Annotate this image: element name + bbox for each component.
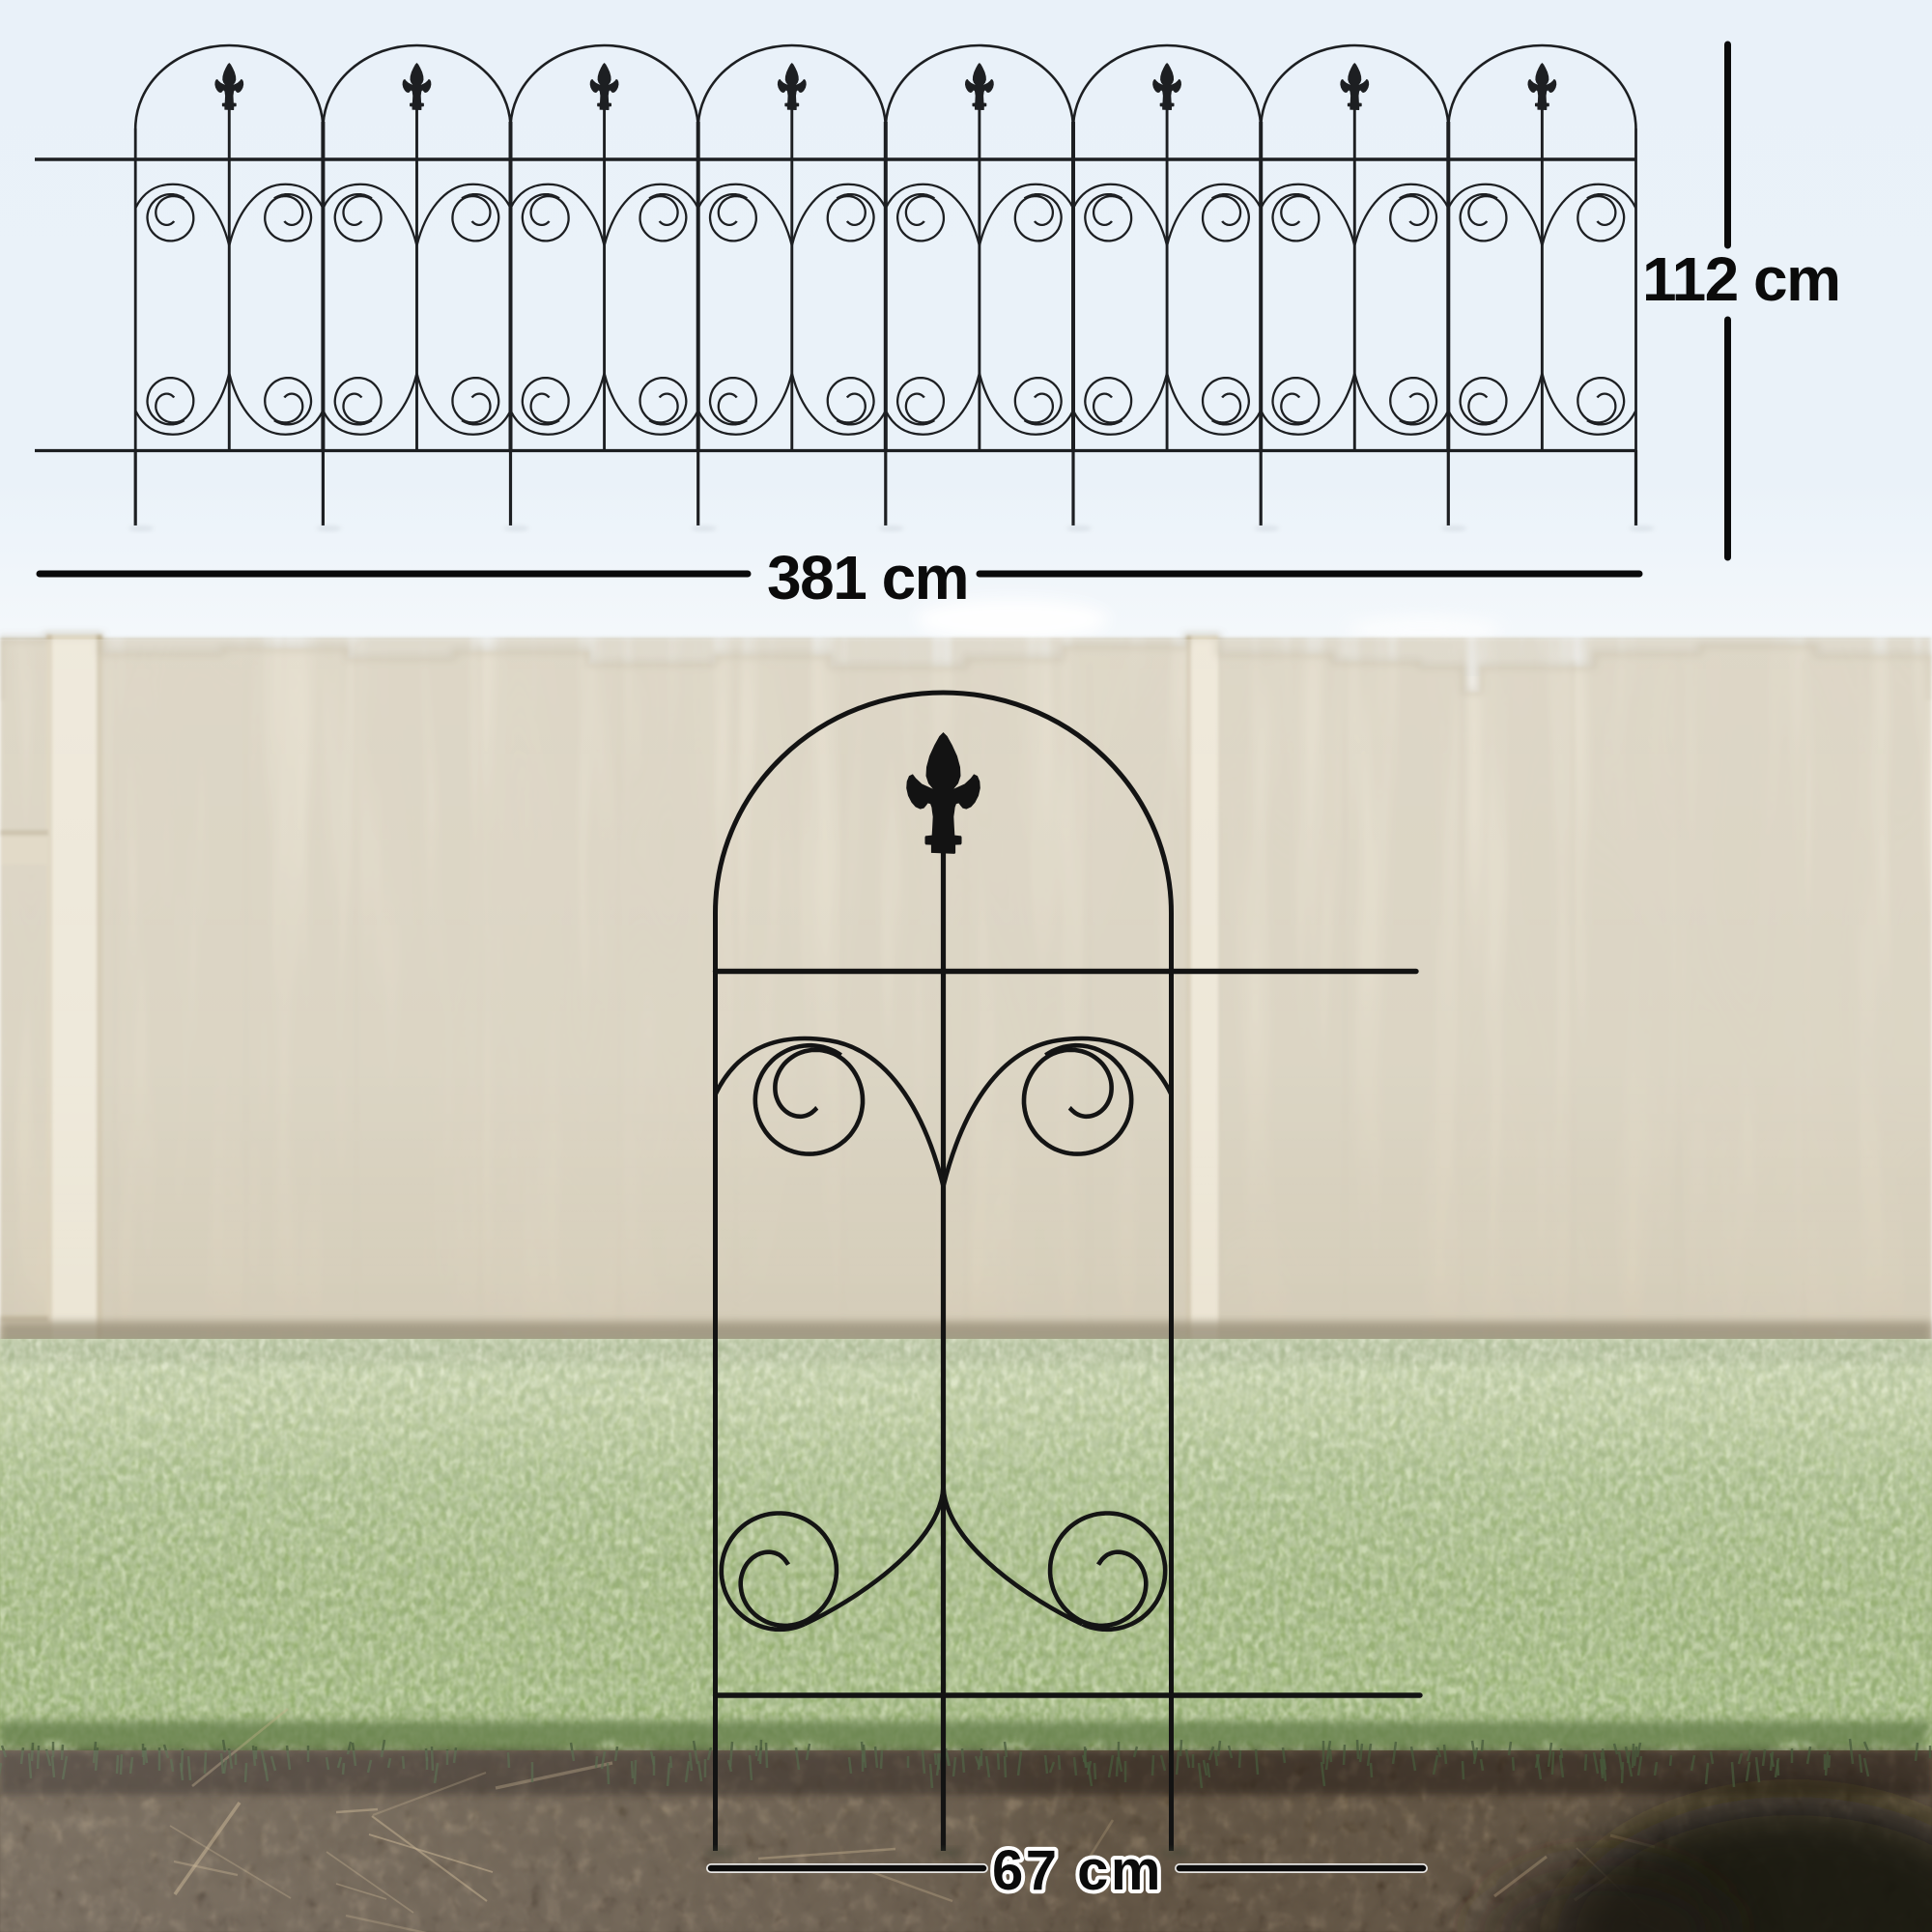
svg-text:67 cm: 67 cm (992, 1839, 1163, 1902)
svg-text:381 cm: 381 cm (767, 543, 968, 612)
svg-text:112 cm: 112 cm (1642, 244, 1840, 314)
